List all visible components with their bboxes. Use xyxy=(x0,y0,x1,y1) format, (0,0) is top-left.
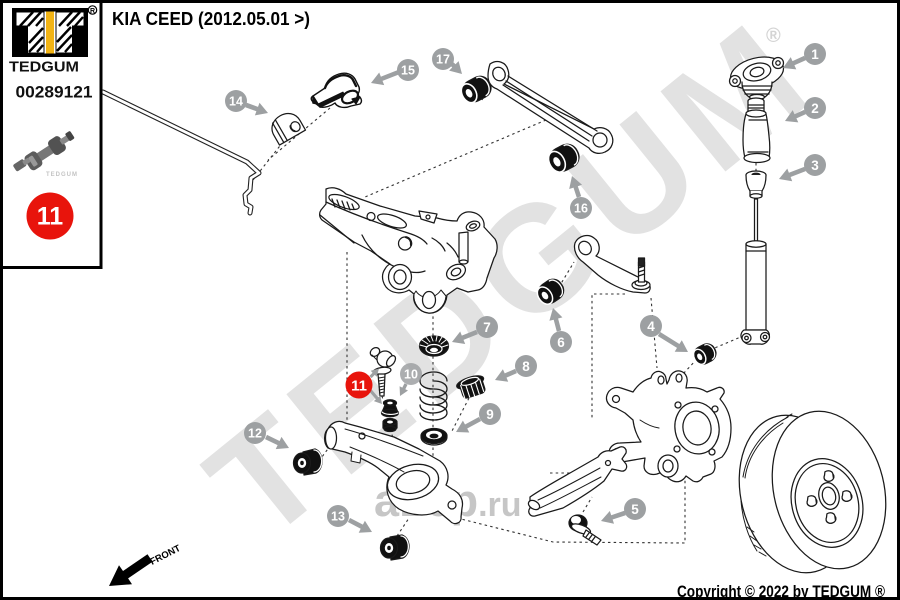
svg-text:1: 1 xyxy=(811,47,819,62)
svg-text:7: 7 xyxy=(483,320,491,335)
svg-text:16: 16 xyxy=(574,201,588,215)
svg-text:14: 14 xyxy=(229,94,243,108)
svg-text:13: 13 xyxy=(331,509,345,523)
svg-text:11: 11 xyxy=(351,378,367,395)
svg-text:®: ® xyxy=(766,25,781,47)
svg-text:5: 5 xyxy=(631,502,639,517)
svg-text:9: 9 xyxy=(486,407,494,422)
svg-text:R: R xyxy=(90,8,95,15)
svg-text:3: 3 xyxy=(811,158,819,173)
svg-text:11: 11 xyxy=(37,203,64,231)
svg-text:2: 2 xyxy=(811,101,819,116)
svg-text:TEDGUM: TEDGUM xyxy=(46,172,78,178)
svg-text:00289121: 00289121 xyxy=(16,83,93,102)
svg-text:10: 10 xyxy=(404,367,418,381)
svg-text:8: 8 xyxy=(522,359,530,374)
svg-text:KIA CEED (2012.05.01 >): KIA CEED (2012.05.01 >) xyxy=(112,8,310,29)
svg-text:TEDGUM: TEDGUM xyxy=(9,60,79,76)
svg-text:12: 12 xyxy=(248,426,262,440)
svg-text:17: 17 xyxy=(436,52,450,66)
svg-text:4: 4 xyxy=(647,319,655,334)
svg-text:6: 6 xyxy=(557,335,565,350)
svg-text:15: 15 xyxy=(401,63,415,77)
